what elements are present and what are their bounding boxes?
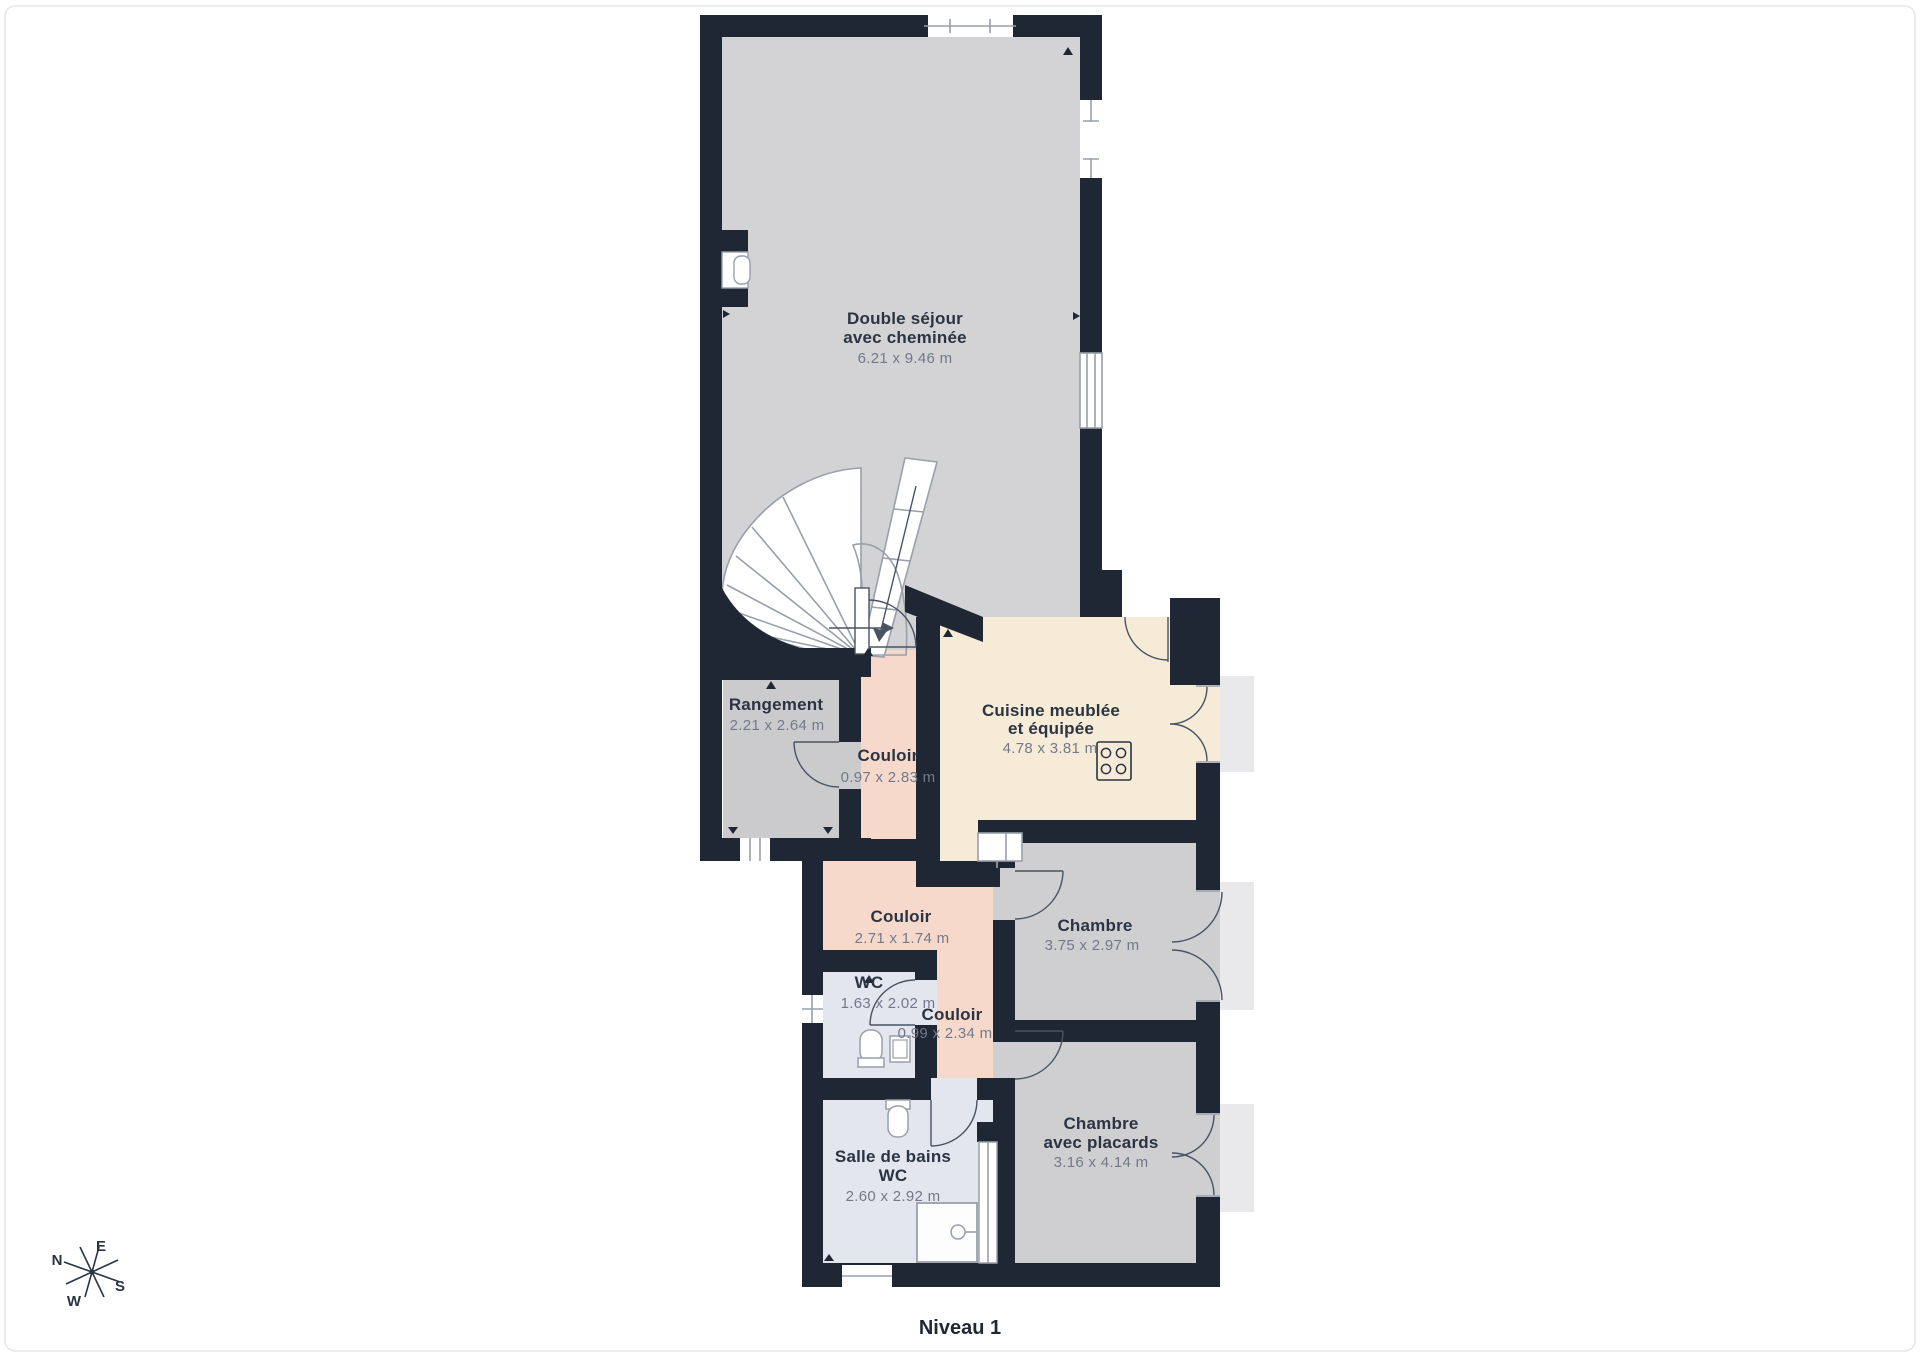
compass-south: S xyxy=(115,1278,125,1295)
window-sejour-top xyxy=(924,19,1016,33)
floor-plan-svg: Double séjour avec cheminée 6.21 x 9.46 … xyxy=(0,0,1920,1358)
room-label-couloir-haut: Couloir xyxy=(858,746,919,765)
room-label-sejour-line1: Double séjour xyxy=(847,309,963,328)
room-label-cuisine-line2: et équipée xyxy=(1008,719,1094,738)
room-label-couloir-bas: Couloir xyxy=(922,1005,983,1024)
window-opening-chambre-placards xyxy=(1196,1113,1220,1197)
window-salle-de-bains xyxy=(842,1265,892,1287)
room-label-cuisine-line1: Cuisine meublée xyxy=(982,701,1120,720)
room-label-wc: WC xyxy=(855,973,884,992)
toilet-icon-wc xyxy=(858,1030,884,1067)
room-label-chambre-placards-line2: avec placards xyxy=(1043,1133,1158,1152)
room-label-couloir-milieu: Couloir xyxy=(871,907,932,926)
compass-rose: N E S W xyxy=(52,1238,125,1310)
floor-caption: Niveau 1 xyxy=(919,1317,1001,1339)
radiator-icon xyxy=(722,252,750,288)
window-rangement xyxy=(740,838,770,861)
window-sejour-right xyxy=(1083,100,1099,178)
shower-icon xyxy=(917,1203,977,1262)
window-wc xyxy=(802,995,823,1023)
room-label-chambre: Chambre xyxy=(1057,916,1132,935)
wardrobe-sliding-door xyxy=(979,1142,997,1263)
room-label-sejour-line2: avec cheminée xyxy=(843,328,967,347)
room-dims-couloir-milieu: 2.71 x 1.74 m xyxy=(855,930,950,947)
floor-plan-page: Double séjour avec cheminée 6.21 x 9.46 … xyxy=(0,0,1920,1358)
room-dims-sejour: 6.21 x 9.46 m xyxy=(858,350,953,367)
room-chambre-placards-floor xyxy=(1015,1042,1196,1263)
exterior-step-kitchen xyxy=(1220,676,1254,772)
room-dims-couloir-bas: 0.99 x 2.34 m xyxy=(898,1025,993,1042)
room-label-rangement: Rangement xyxy=(729,695,824,714)
exterior-step-chambre xyxy=(1220,882,1254,1010)
compass-west: W xyxy=(67,1293,82,1310)
room-dims-cuisine: 4.78 x 3.81 m xyxy=(1003,740,1098,757)
exterior-step-chambre-placards xyxy=(1220,1104,1254,1212)
room-label-chambre-placards-line1: Chambre xyxy=(1063,1114,1138,1133)
compass-north: N xyxy=(52,1252,63,1269)
compass-center-dot xyxy=(89,1269,94,1274)
door-opening-salle-de-bains xyxy=(931,1078,977,1100)
window-opening-kitchen xyxy=(1196,685,1220,763)
window-sejour-glazed xyxy=(1080,353,1102,428)
window-opening-chambre xyxy=(1196,890,1220,1002)
room-dims-salle-de-bains: 2.60 x 2.92 m xyxy=(846,1188,941,1205)
room-dims-chambre: 3.75 x 2.97 m xyxy=(1045,937,1140,954)
room-label-salle-de-bains-line2: WC xyxy=(879,1166,908,1185)
room-dims-chambre-placards: 3.16 x 4.14 m xyxy=(1054,1154,1149,1171)
room-label-salle-de-bains-line1: Salle de bains xyxy=(835,1147,951,1166)
toilet-icon-bathroom xyxy=(886,1100,910,1137)
room-dims-rangement: 2.21 x 2.64 m xyxy=(730,717,825,734)
compass-east: E xyxy=(96,1238,106,1255)
room-dims-couloir-haut: 0.97 x 2.83 m xyxy=(841,769,936,786)
